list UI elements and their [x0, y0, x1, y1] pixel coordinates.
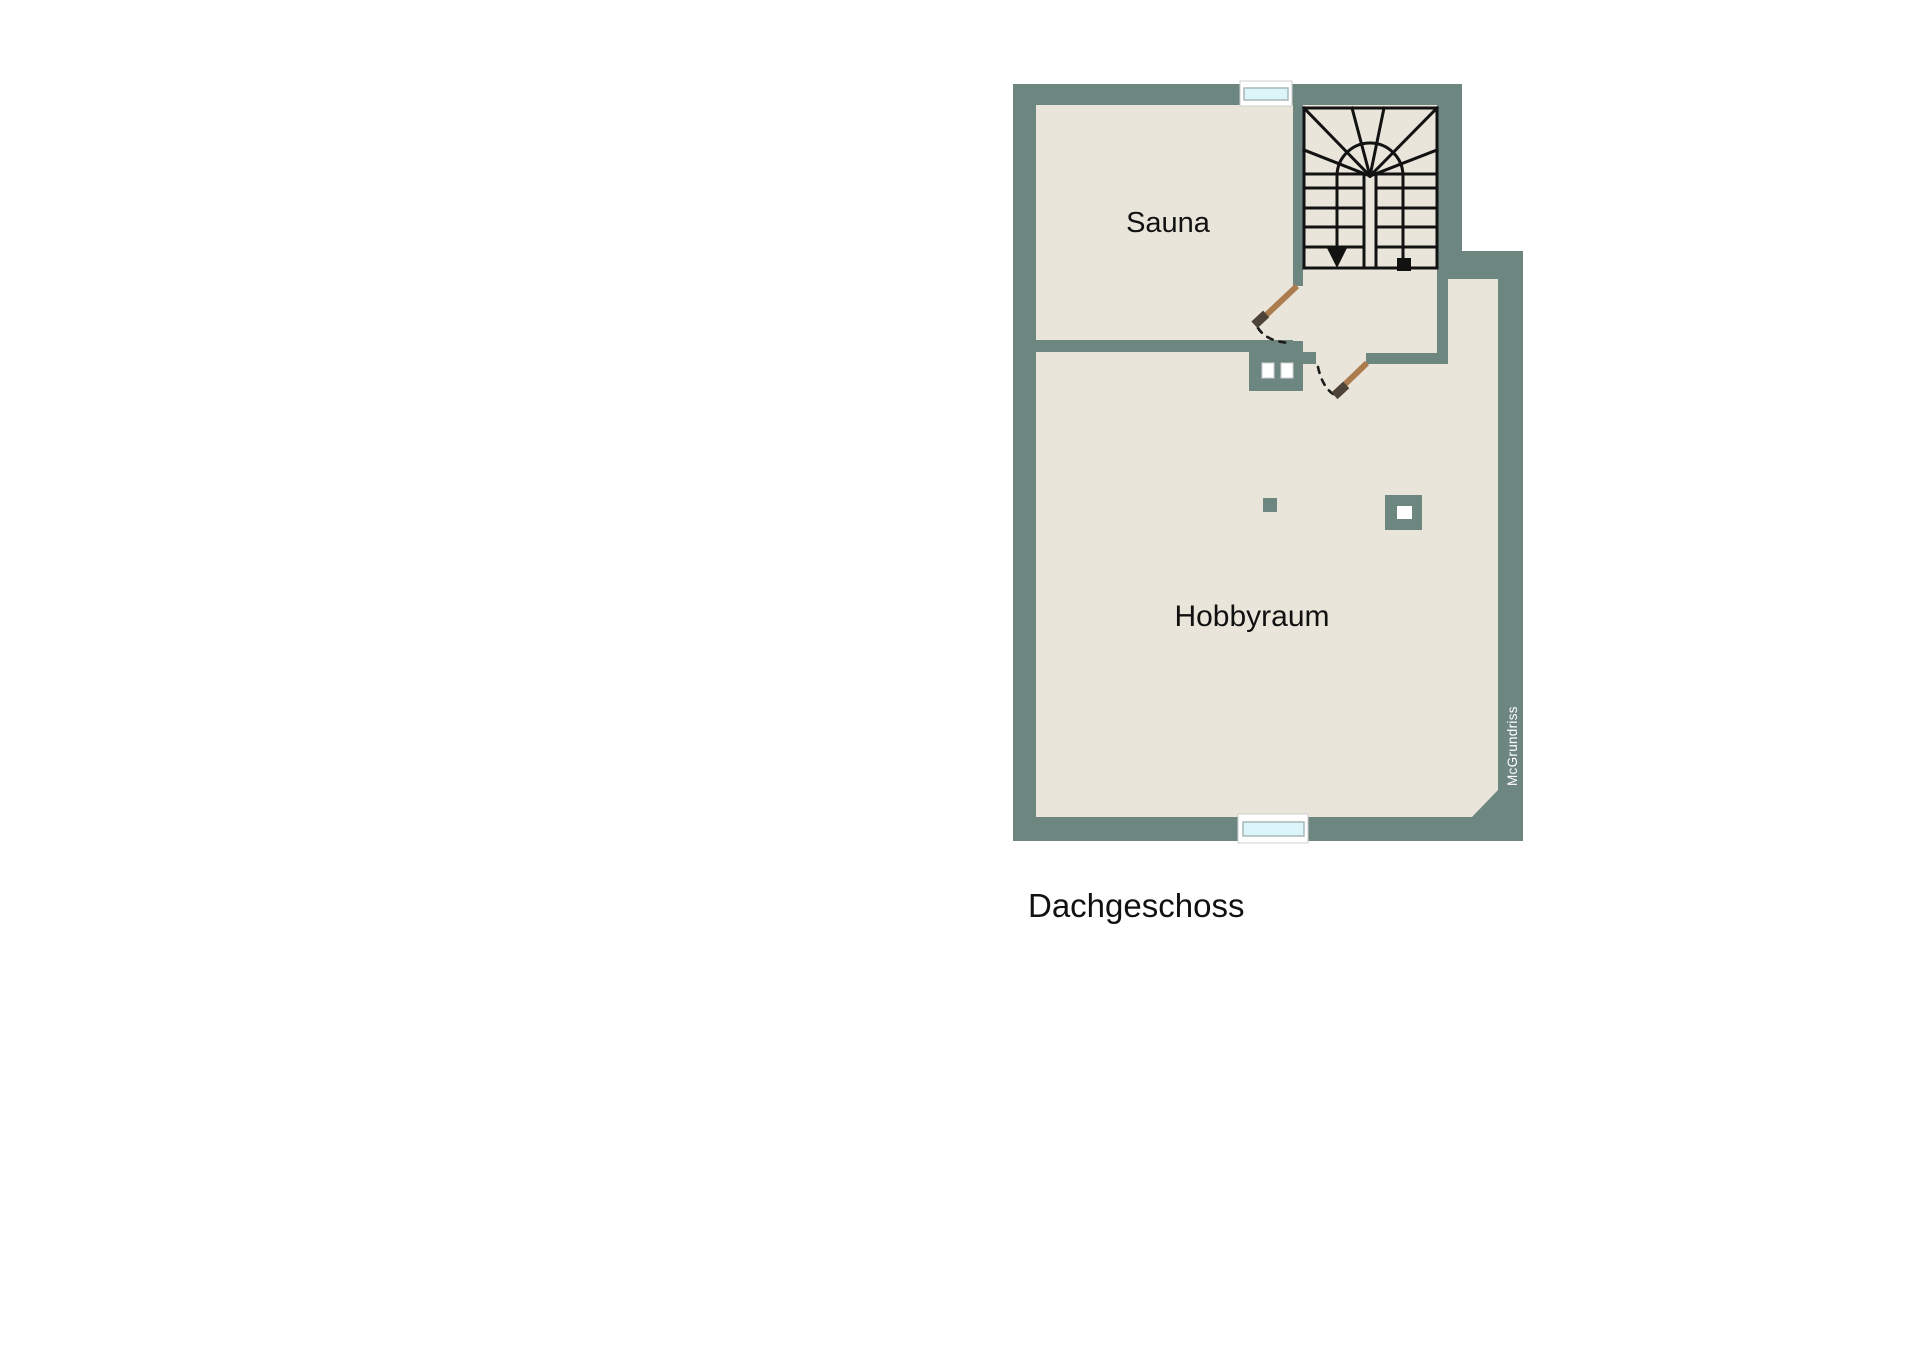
heater-vent-right — [1281, 363, 1293, 378]
chimney-marker — [1385, 495, 1422, 530]
stair-entry-marker — [1397, 258, 1411, 271]
room-label-hobbyraum: Hobbyraum — [1174, 600, 1329, 633]
column-marker — [1263, 498, 1277, 512]
heater-vent-left — [1262, 363, 1274, 378]
window-top — [1240, 81, 1292, 106]
watermark-text: McGrundriss — [1505, 706, 1520, 786]
room-label-sauna: Sauna — [1126, 207, 1211, 239]
window-bottom — [1238, 814, 1308, 843]
building — [1013, 84, 1523, 841]
floor-plan-canvas: Sauna Hobbyraum Dachgeschoss McGrundriss — [0, 0, 1920, 1357]
floor-plan-page: { "floor_plan": { "floor_label": "Dachge… — [0, 0, 1920, 1357]
floor-title: Dachgeschoss — [1028, 887, 1244, 924]
